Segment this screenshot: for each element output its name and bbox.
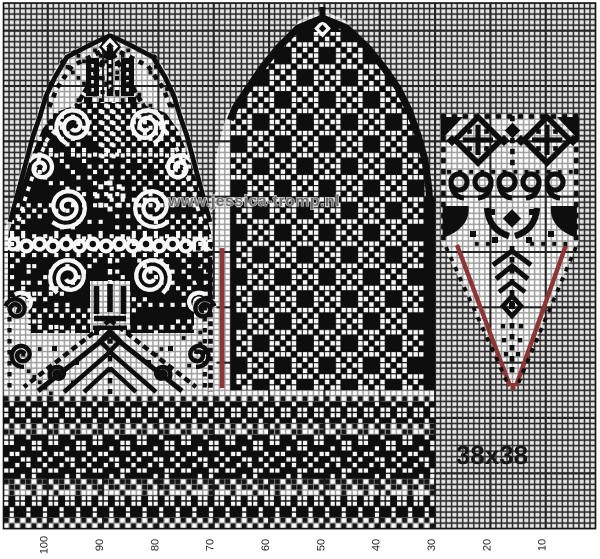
svg-text:40: 40 (371, 539, 383, 551)
svg-text:38x38: 38x38 (456, 440, 528, 470)
svg-text:100: 100 (39, 536, 51, 554)
svg-text:60: 60 (260, 539, 272, 551)
svg-text:www.jessica-tromp.nl: www.jessica-tromp.nl (167, 193, 340, 210)
svg-text:10: 10 (537, 539, 549, 551)
svg-text:30: 30 (426, 539, 438, 551)
svg-text:80: 80 (149, 539, 161, 551)
svg-text:50: 50 (315, 539, 327, 551)
svg-text:70: 70 (205, 539, 217, 551)
svg-text:90: 90 (94, 539, 106, 551)
svg-text:20: 20 (481, 539, 493, 551)
